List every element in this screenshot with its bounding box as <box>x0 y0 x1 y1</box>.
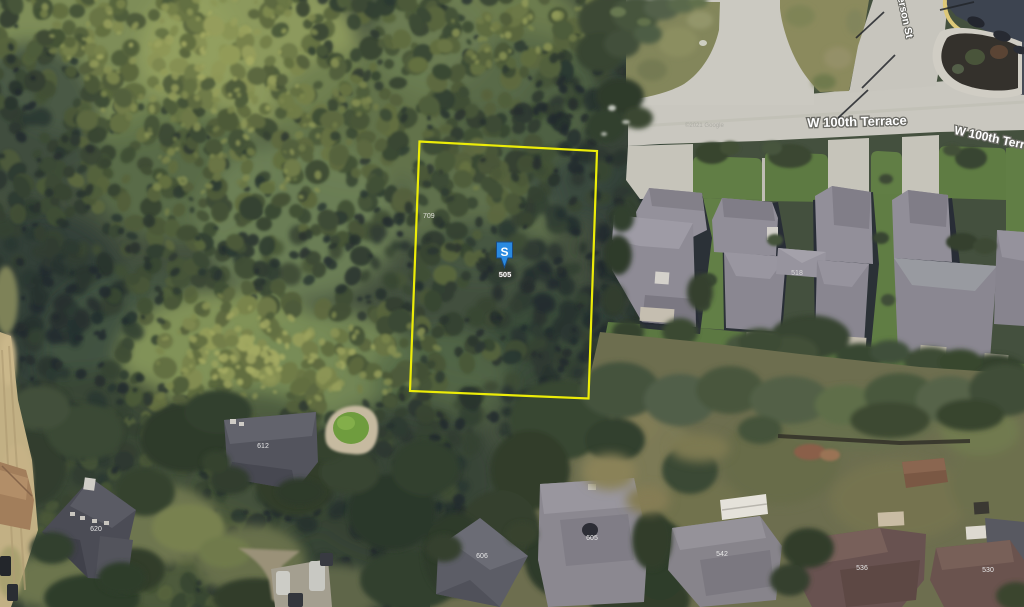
svg-text:©2021 Google: ©2021 Google <box>685 122 724 129</box>
svg-text:530: 530 <box>982 567 994 574</box>
svg-text:505: 505 <box>499 270 512 279</box>
svg-text:542: 542 <box>716 551 728 558</box>
svg-text:709: 709 <box>423 213 435 220</box>
svg-text:606: 606 <box>476 553 488 560</box>
svg-text:518: 518 <box>791 270 803 277</box>
svg-text:536: 536 <box>856 565 868 572</box>
svg-text:S: S <box>500 245 508 259</box>
svg-text:612: 612 <box>257 443 269 450</box>
svg-text:605: 605 <box>586 535 598 542</box>
svg-text:W 100th Terrace: W 100th Terrace <box>807 113 907 131</box>
svg-text:620: 620 <box>90 526 102 533</box>
